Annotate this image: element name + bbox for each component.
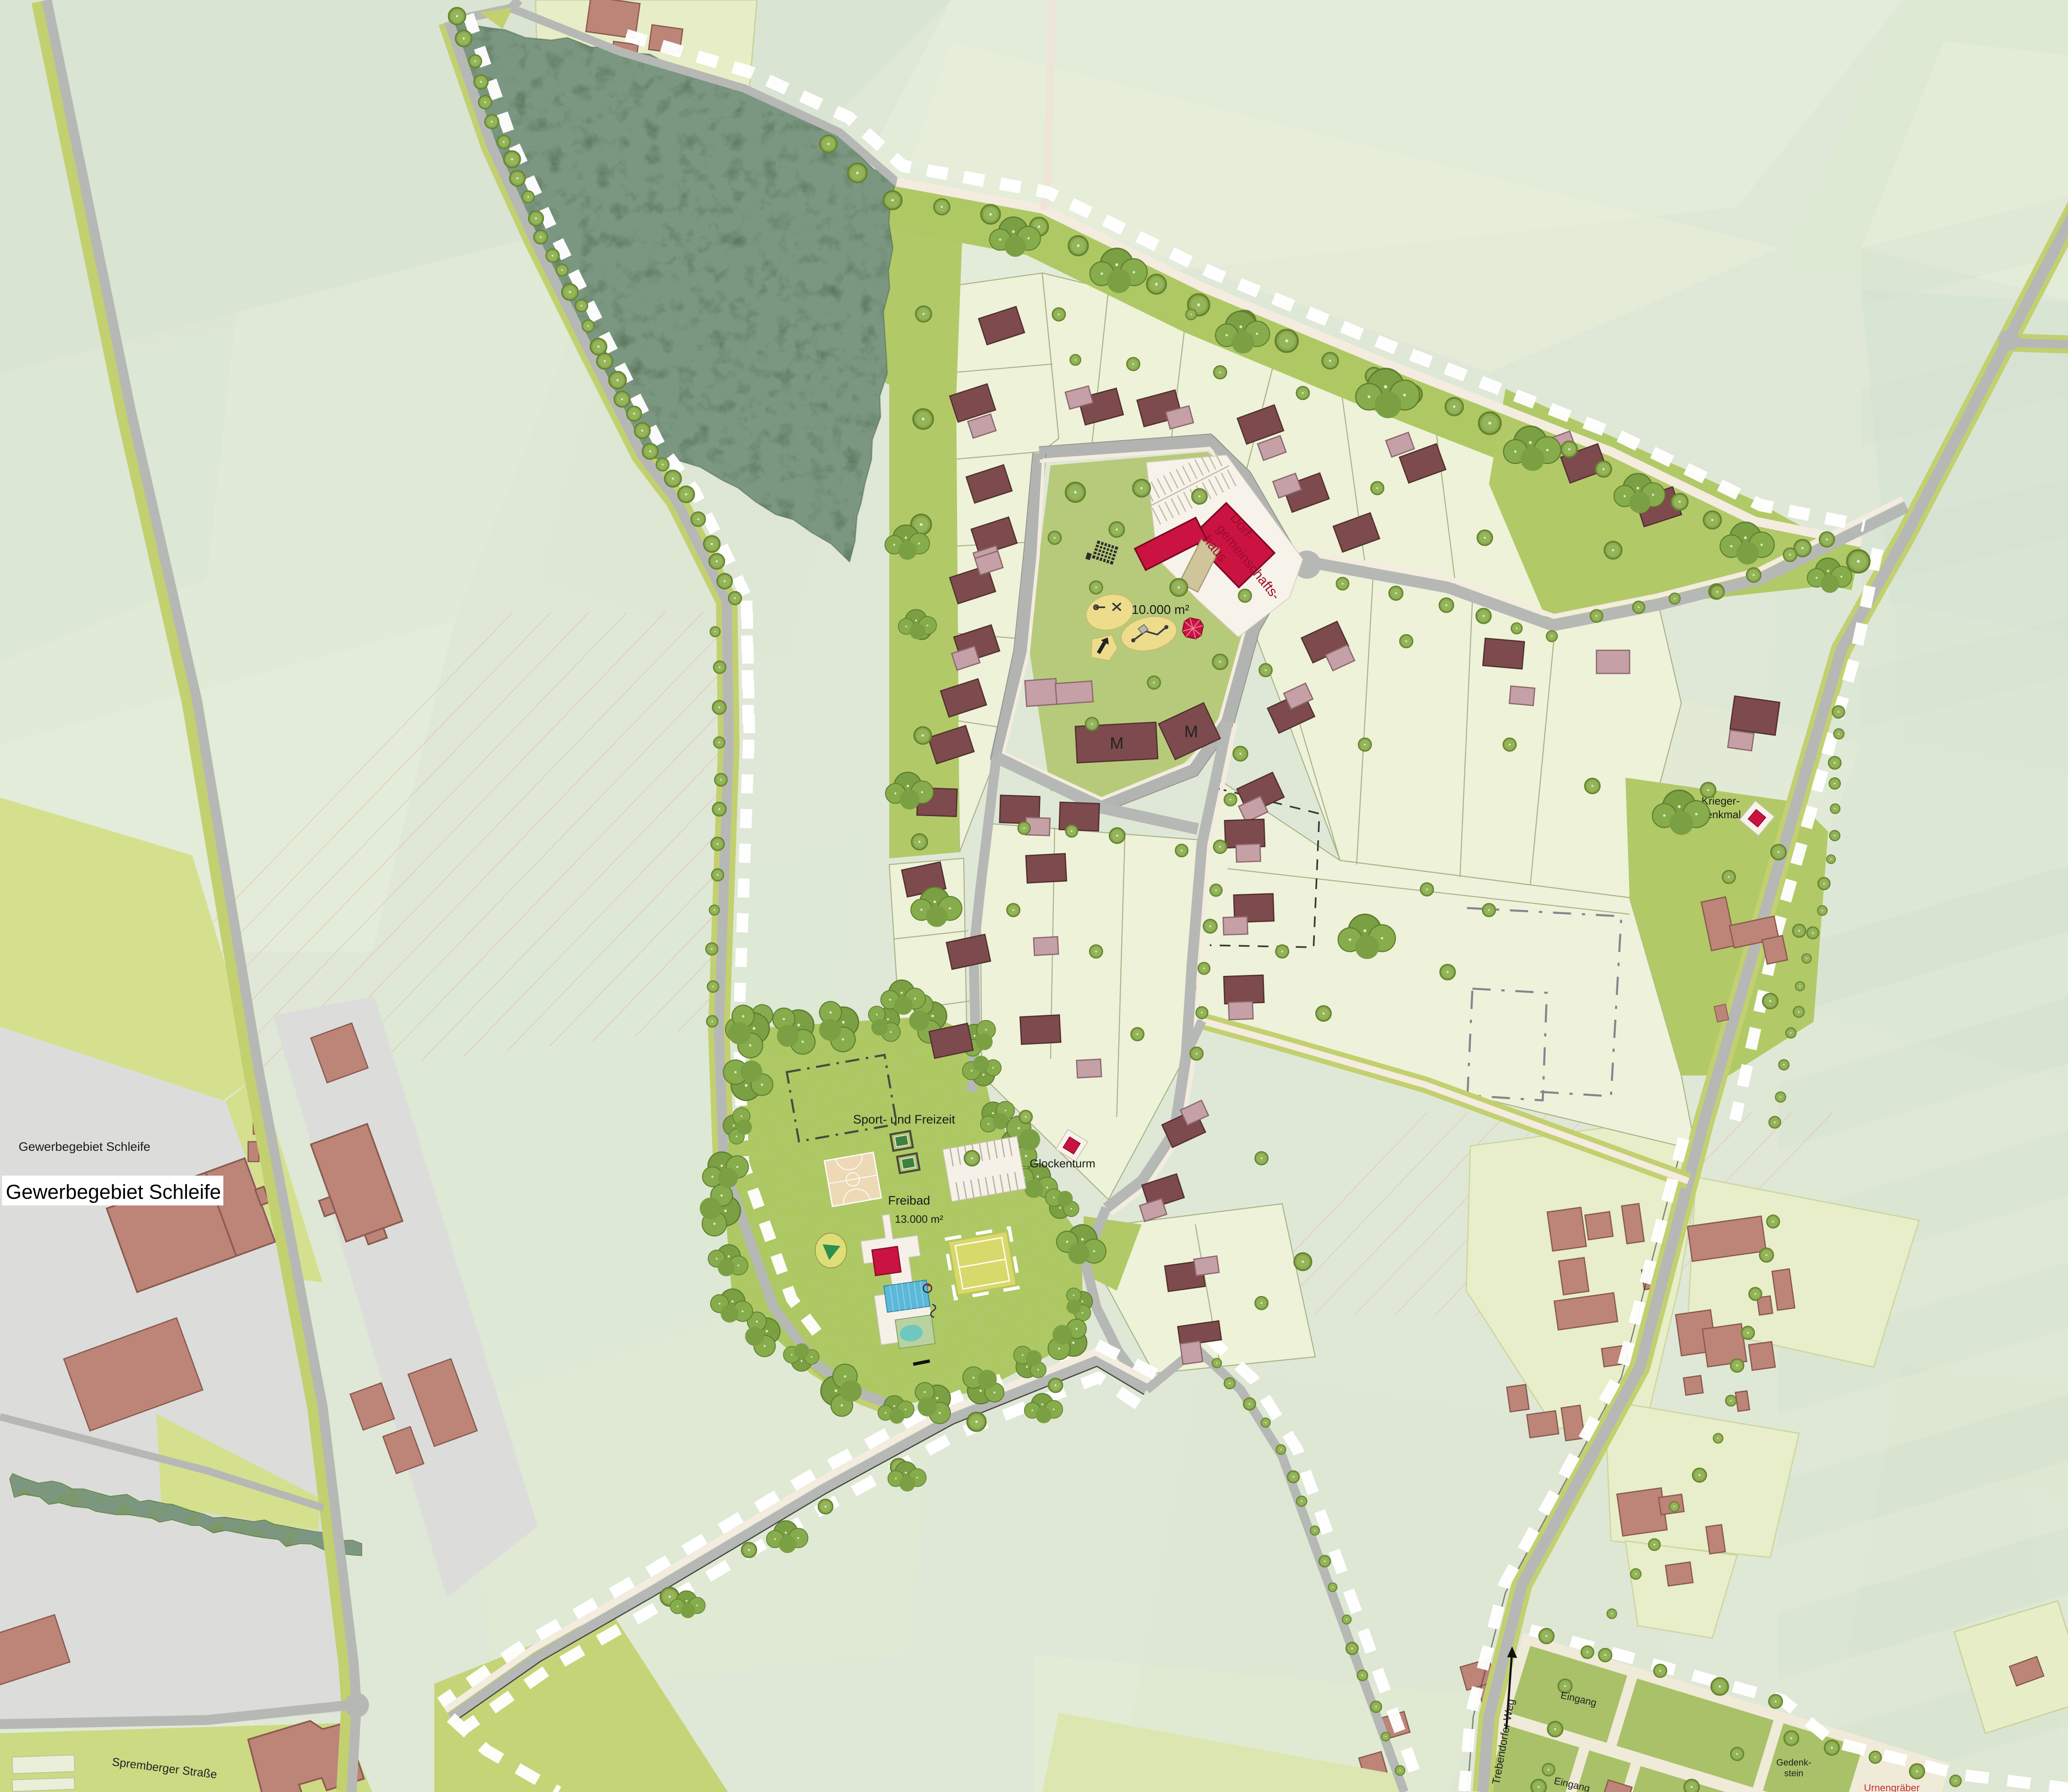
svg-text:Urnengräber: Urnengräber	[1864, 1782, 1920, 1792]
svg-text:M: M	[1110, 734, 1123, 752]
svg-text:Gewerbegebiet Schleife: Gewerbegebiet Schleife	[6, 1181, 221, 1203]
svg-text:M: M	[1184, 723, 1198, 741]
svg-text:Sport- und Freizeit: Sport- und Freizeit	[853, 1113, 955, 1126]
svg-text:Glockenturm: Glockenturm	[1030, 1157, 1096, 1170]
svg-text:stein: stein	[1784, 1768, 1803, 1778]
svg-text:13.000 m²: 13.000 m²	[895, 1213, 943, 1225]
svg-text:Gedenk-: Gedenk-	[1776, 1757, 1811, 1768]
svg-text:10.000 m²: 10.000 m²	[1132, 602, 1190, 617]
svg-text:Gewerbegebiet Schleife: Gewerbegebiet Schleife	[19, 1140, 151, 1154]
svg-text:Freibad: Freibad	[888, 1194, 930, 1207]
